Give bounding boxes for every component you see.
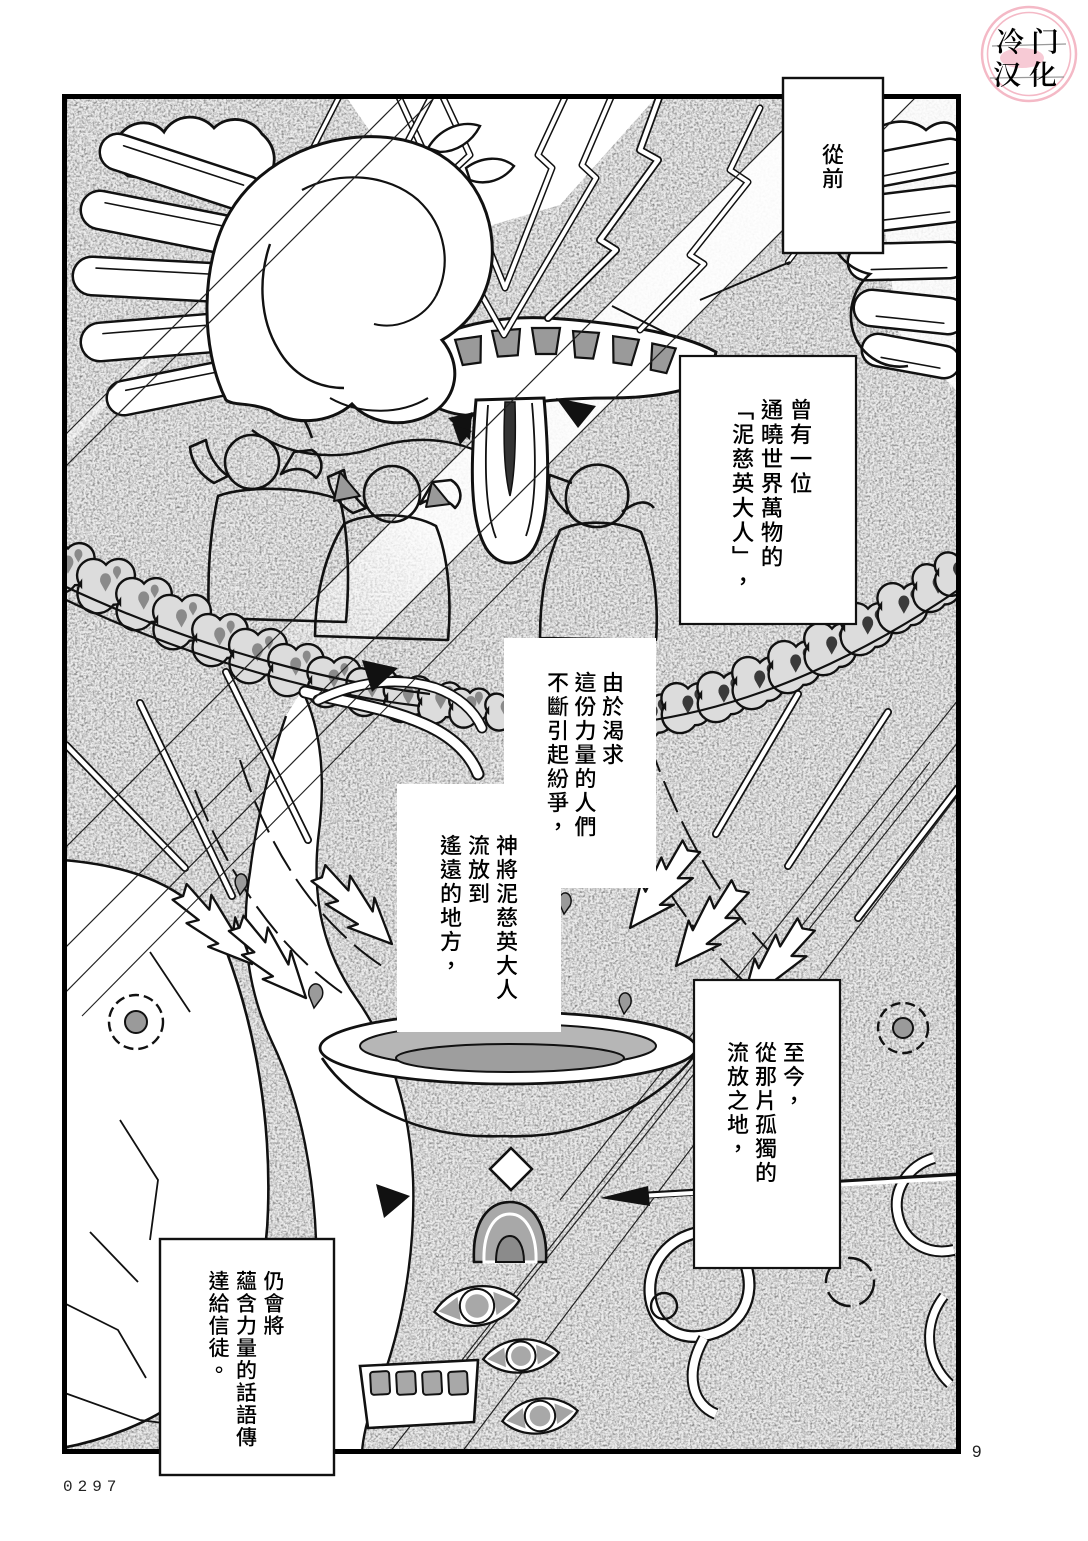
svg-text:9: 9: [972, 1442, 981, 1461]
svg-text:0297: 0297: [63, 1478, 121, 1496]
